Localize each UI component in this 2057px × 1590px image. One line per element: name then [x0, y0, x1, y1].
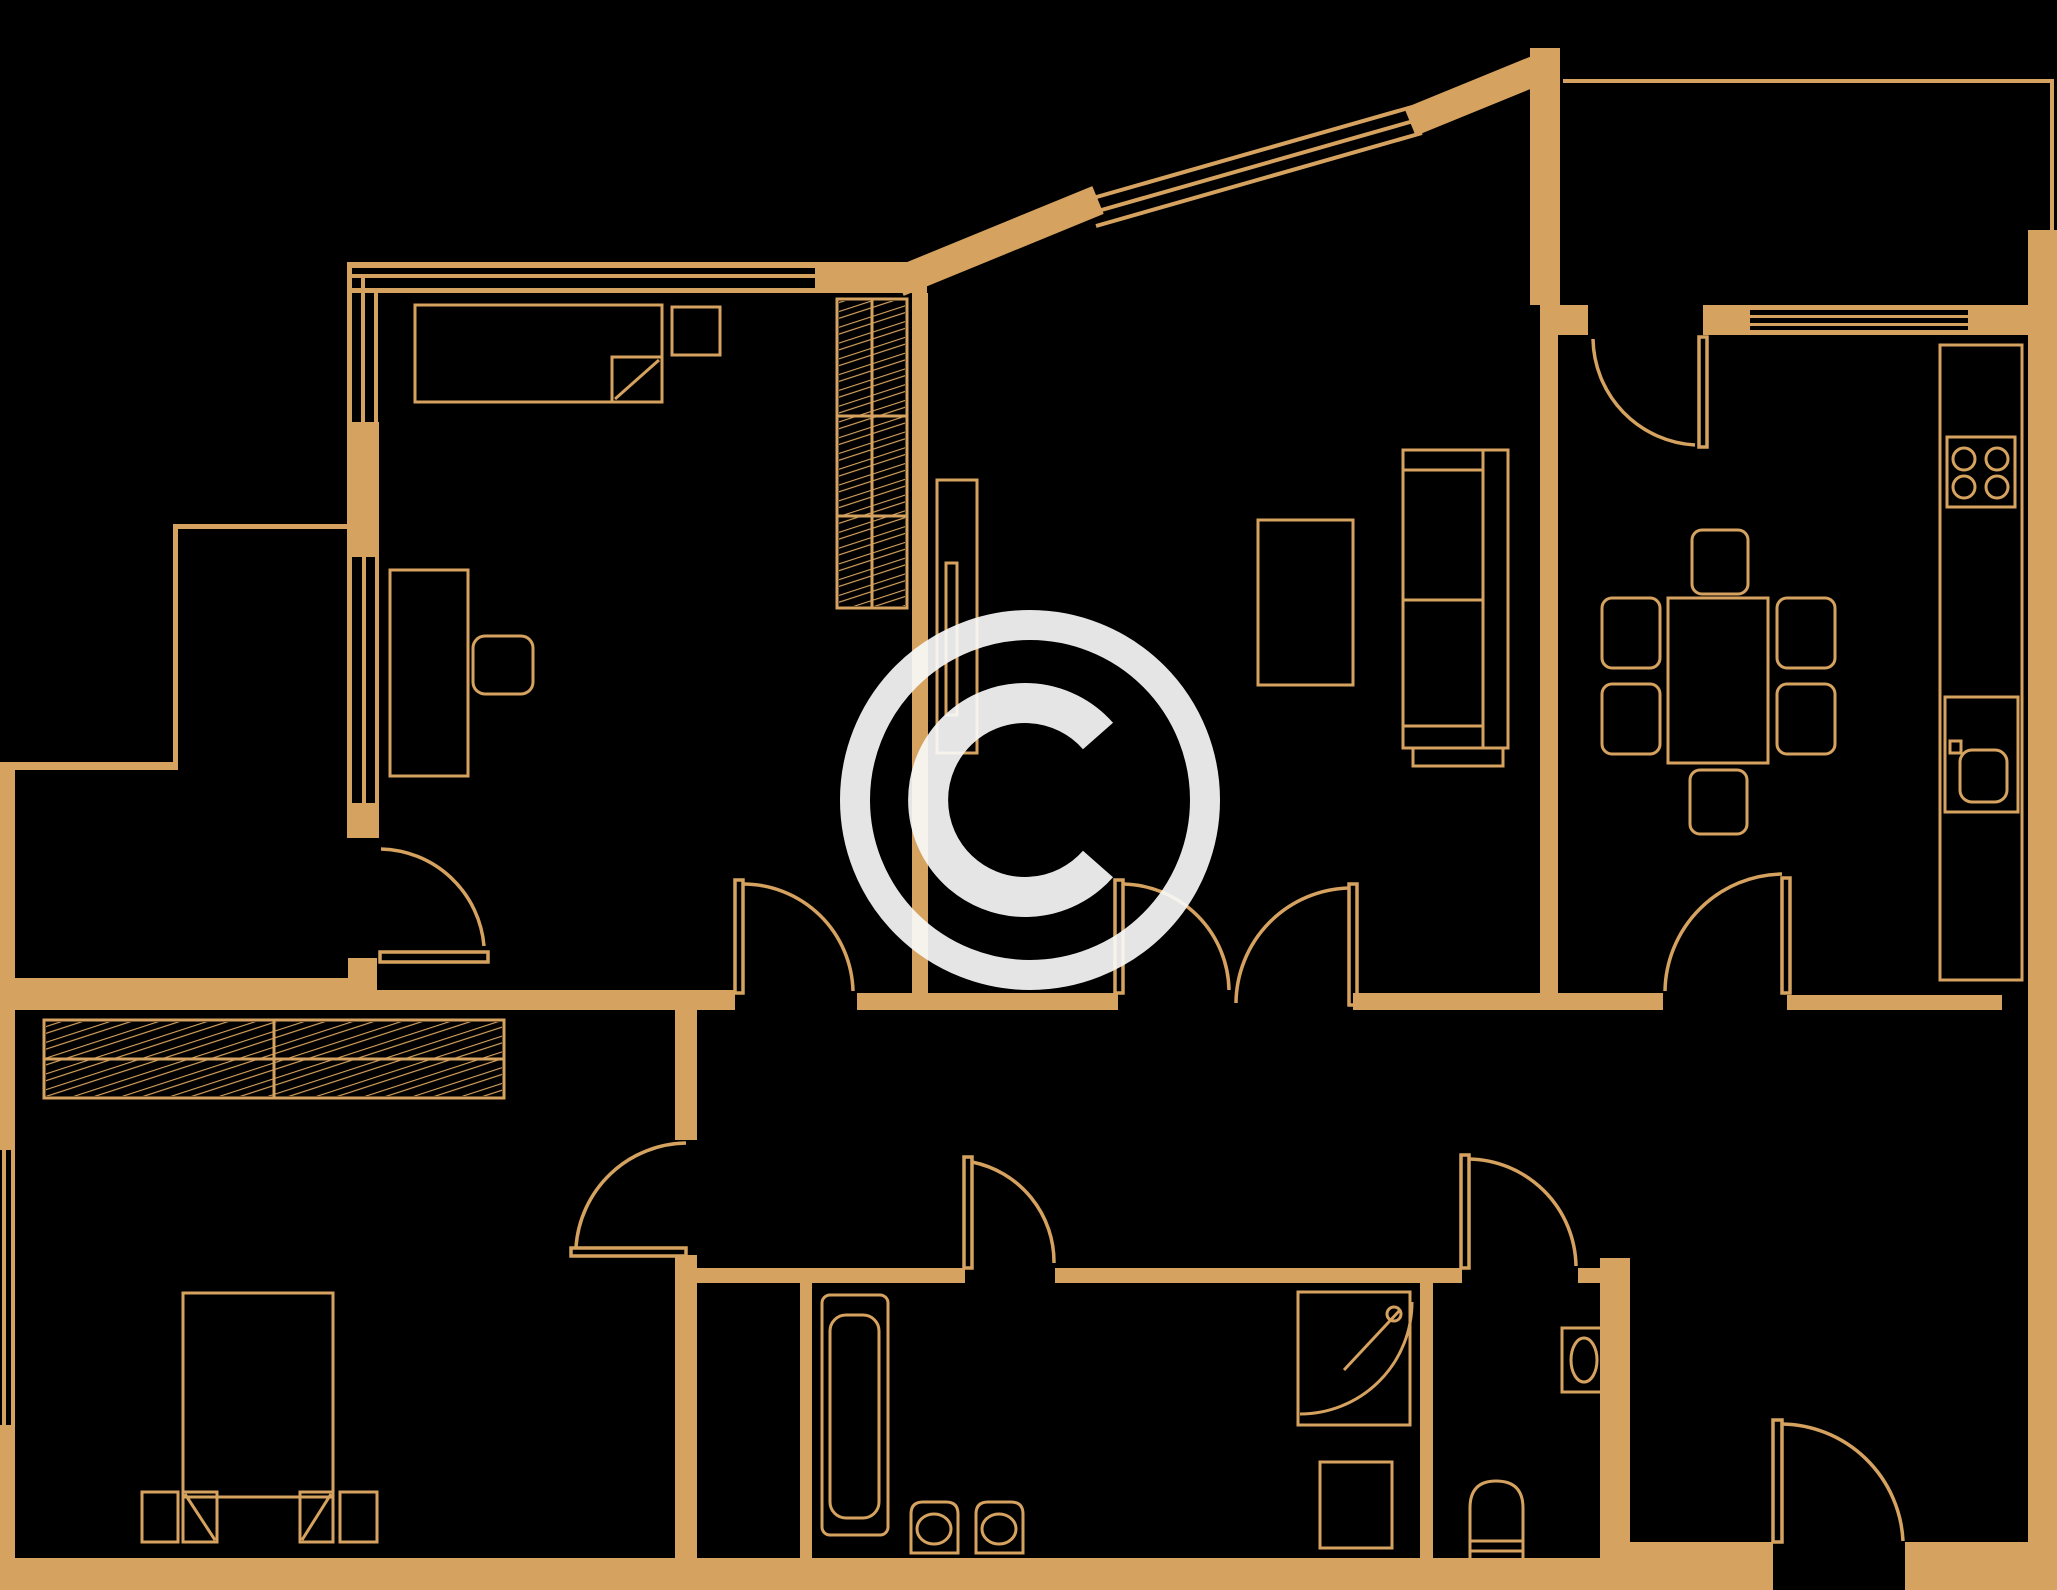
door-kitchen-hall	[1665, 874, 1790, 993]
nightstand-right	[340, 1492, 377, 1542]
wall-nook-bottom	[0, 762, 178, 770]
dining-chairs	[1602, 530, 1835, 834]
dining-table	[1668, 598, 1768, 763]
window-top-left-room	[347, 262, 815, 422]
wall-outer-left-a	[0, 770, 15, 1150]
wall-bath-top-a	[697, 1268, 965, 1283]
bed-top-left	[415, 305, 662, 402]
window-left-room	[347, 557, 379, 803]
coffee-table	[1258, 520, 1353, 685]
sofa	[1403, 450, 1508, 766]
wall-band-kitchen-a	[1542, 993, 1663, 1010]
copyright-watermark	[855, 625, 1205, 975]
wall-nook-left	[173, 524, 178, 770]
door-bathroom	[964, 1157, 1054, 1268]
wall-left-lower	[347, 803, 379, 838]
nightstand-left	[142, 1492, 178, 1542]
wall-band-b	[857, 993, 1118, 1010]
wall-outer-bottom-c	[1905, 1542, 2057, 1590]
tall-wardrobe	[837, 299, 907, 608]
wall-wc-right	[1600, 1258, 1630, 1562]
wall-outer-left-b	[0, 1425, 15, 1590]
door-kitchen-balcony	[1593, 337, 1707, 447]
wall-bathroom-left	[800, 1283, 812, 1562]
wall-band-stub	[348, 958, 377, 1010]
wall-diagonal-a	[898, 200, 1098, 282]
wall-outer-bottom-b	[1630, 1542, 1773, 1590]
washbasin-2	[976, 1502, 1023, 1553]
wall-band-kitchen-b	[1787, 995, 2002, 1010]
wall-left-upper	[347, 422, 379, 557]
shower	[1298, 1292, 1412, 1425]
wall-kitchen-divider	[1540, 62, 1558, 993]
washing-machine	[1320, 1462, 1392, 1548]
desk-chair	[473, 636, 533, 694]
wall-bedroom2-right-b	[675, 1255, 697, 1562]
kitchen-sink	[1945, 697, 2018, 812]
wall-outer-right	[2028, 230, 2057, 1590]
wall-bath-top-b	[1055, 1268, 1462, 1283]
door-entry	[1773, 1420, 1903, 1542]
window-diagonal	[1086, 107, 1422, 226]
wall-bedroom2-right-a	[675, 1010, 697, 1140]
floor-plan	[0, 0, 2057, 1590]
nightstand-top-left	[672, 307, 720, 355]
wall-band-left	[0, 978, 348, 1010]
furniture	[44, 299, 2022, 1558]
door-bedroom1-balcony	[380, 849, 488, 962]
wall-nook-top	[173, 524, 351, 529]
door-wc	[1461, 1155, 1576, 1268]
washbasin-1	[911, 1502, 958, 1553]
wall-band-a	[377, 990, 735, 1010]
wall-kitchen-top-b	[1703, 305, 1750, 335]
desk	[390, 570, 468, 776]
floor-plan-canvas	[0, 0, 2057, 1590]
door-bedroom2	[571, 1143, 686, 1256]
wall-kitchen-top-a	[1546, 305, 1588, 335]
wall-balcony-right	[2050, 79, 2054, 234]
toilet	[1470, 1481, 1523, 1558]
wall-wc-left	[1420, 1283, 1433, 1562]
window-kitchen	[1750, 305, 1968, 335]
wardrobe-band	[44, 1020, 504, 1098]
door-hall-left	[735, 880, 853, 993]
bed-bottom-left	[183, 1293, 333, 1542]
kitchen-counter	[1940, 345, 2022, 980]
bathtub	[822, 1295, 888, 1535]
wall-outer-bottom-a	[15, 1558, 1630, 1590]
wall-balcony-top	[1563, 79, 2054, 83]
wall-band-c	[1353, 993, 1542, 1010]
window-bottom-left-bedroom	[2, 1150, 15, 1425]
wall-diagonal-b	[1410, 66, 1547, 122]
